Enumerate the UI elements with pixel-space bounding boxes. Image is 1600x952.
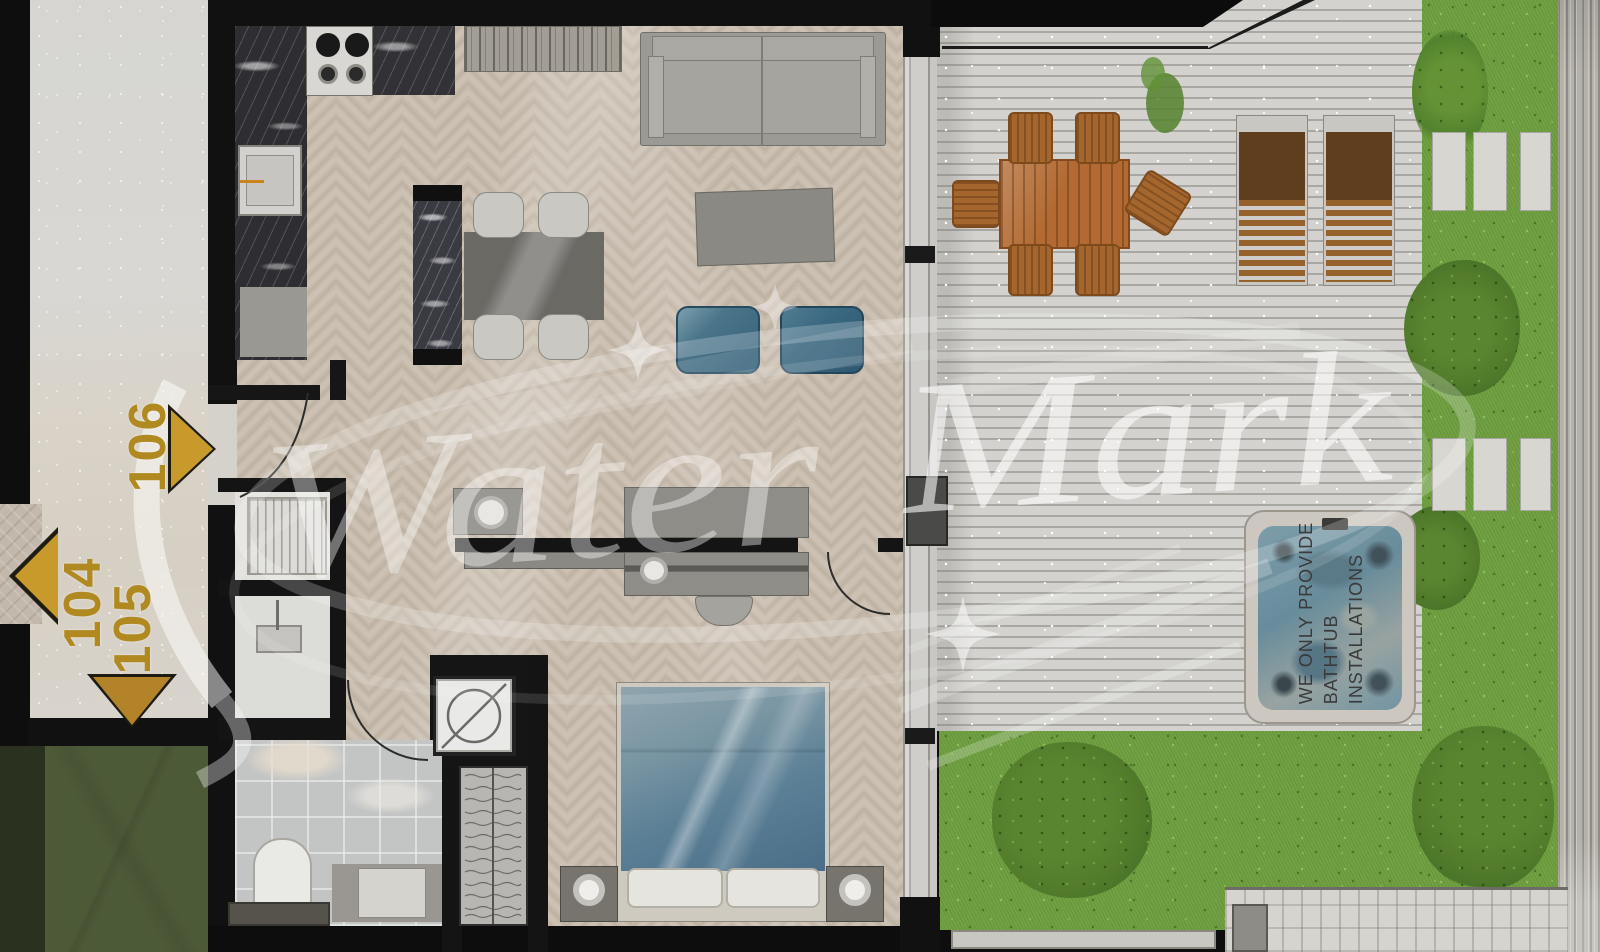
- svg-text:Water: Water: [253, 364, 828, 624]
